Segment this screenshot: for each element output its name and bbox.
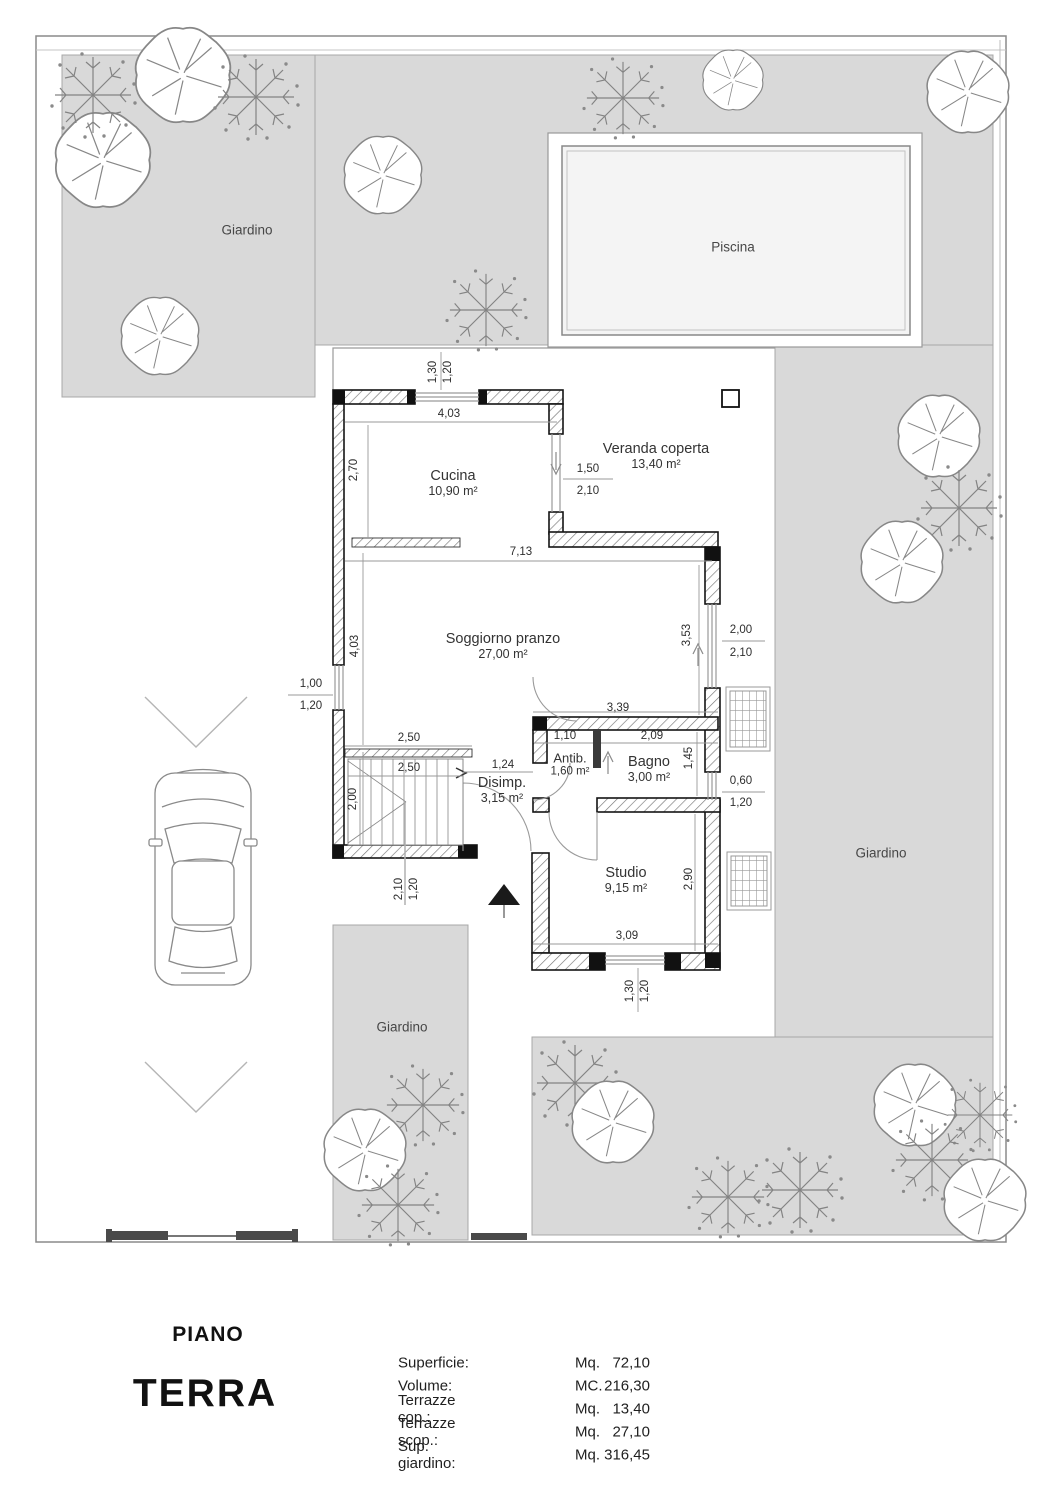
dimension-label: 2,00 — [730, 624, 752, 636]
entrance-marker-icon — [488, 884, 520, 918]
dimension-label: 4,03 — [349, 635, 361, 657]
dimension-label: 1,20 — [408, 878, 420, 900]
room-label-soggiorno: Soggiorno pranzo 27,00 m² — [446, 631, 560, 661]
bagno-arrow-icon — [603, 752, 613, 774]
dimension-label: 1,30 — [624, 980, 636, 1002]
dimension-label: 3,53 — [681, 624, 693, 646]
tree-icon — [927, 51, 1009, 133]
dimension-label: 2,10 — [577, 485, 599, 497]
dimension-label: 3,39 — [607, 702, 629, 714]
dimension-label: 2,50 — [398, 732, 420, 744]
veranda-pillar — [722, 390, 739, 407]
dimension-label: 1,24 — [492, 759, 514, 771]
dimension-label: 2,50 — [398, 762, 420, 774]
pool-label: Piscina — [711, 240, 755, 255]
garden-label-top-left: Giardino — [221, 223, 272, 238]
dimension-label: 7,13 — [510, 546, 532, 558]
dimension-label: 1,20 — [639, 980, 651, 1002]
dimension-label: 2,10 — [730, 647, 752, 659]
car — [149, 770, 257, 986]
dimension-label: 1,50 — [577, 463, 599, 475]
dimension-label: 4,03 — [438, 408, 460, 420]
floor-plan-page: Giardino Piscina Giardino Giardino Cucin… — [0, 0, 1061, 1500]
stairs — [348, 759, 466, 905]
dimension-label: 1,30 — [427, 361, 439, 383]
dimension-label: 2,90 — [683, 868, 695, 890]
dimension-label: 1,00 — [300, 678, 322, 690]
building-outline — [333, 348, 775, 390]
dimension-label: 1,45 — [683, 747, 695, 769]
dimension-label: 2,00 — [347, 788, 359, 810]
floor-title-line2: TERRA — [133, 1372, 277, 1416]
garden-door-arrow-icon — [693, 644, 703, 666]
tree-icon — [944, 1159, 1026, 1241]
dimension-label: 2,70 — [348, 459, 360, 481]
wall-pillars — [333, 390, 720, 970]
dimension-label: 2,09 — [641, 730, 663, 742]
dimension-label: 1,20 — [730, 797, 752, 809]
dimension-label: 1,20 — [300, 700, 322, 712]
bagno-partition — [593, 729, 601, 768]
room-label-disimpegno: Disimp. 3,15 m² — [478, 775, 526, 805]
dimension-label: 0,60 — [730, 775, 752, 787]
room-label-studio: Studio 9,15 m² — [605, 865, 647, 895]
floor-title-line1: PIANO — [172, 1323, 244, 1347]
room-label-veranda: Veranda coperta 13,40 m² — [603, 441, 709, 471]
floor-plan-drawing — [0, 0, 1061, 1500]
dimension-label: 1,20 — [442, 361, 454, 383]
garden-label-bottom: Giardino — [376, 1020, 427, 1035]
dimension-label: 3,09 — [616, 930, 638, 942]
room-label-antibagno: Antib. 1,60 m² — [551, 751, 590, 778]
dimension-label: 2,10 — [393, 878, 405, 900]
dimension-label: 1,10 — [554, 730, 576, 742]
room-label-cucina: Cucina 10,90 m² — [428, 468, 477, 498]
garden-label-right: Giardino — [855, 846, 906, 861]
walls — [333, 390, 720, 970]
room-label-bagno: Bagno 3,00 m² — [628, 754, 670, 784]
